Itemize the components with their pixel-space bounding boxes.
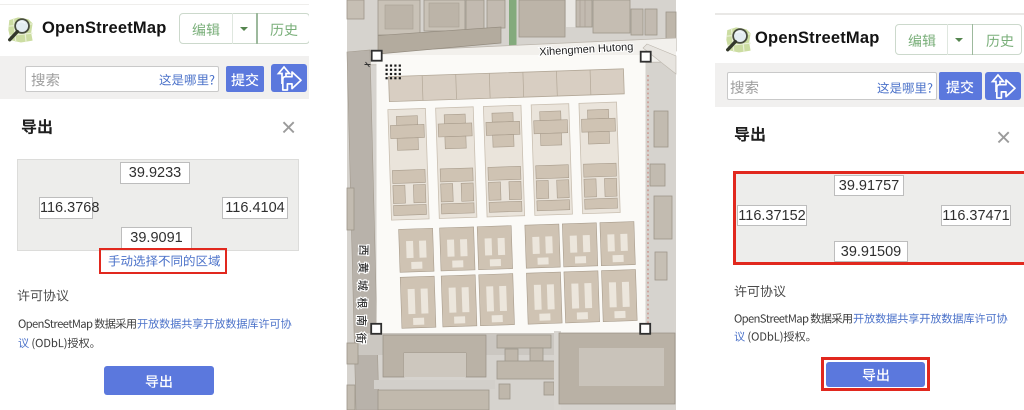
svg-text:Xihengmen Hutong: Xihengmen Hutong [539, 41, 634, 58]
